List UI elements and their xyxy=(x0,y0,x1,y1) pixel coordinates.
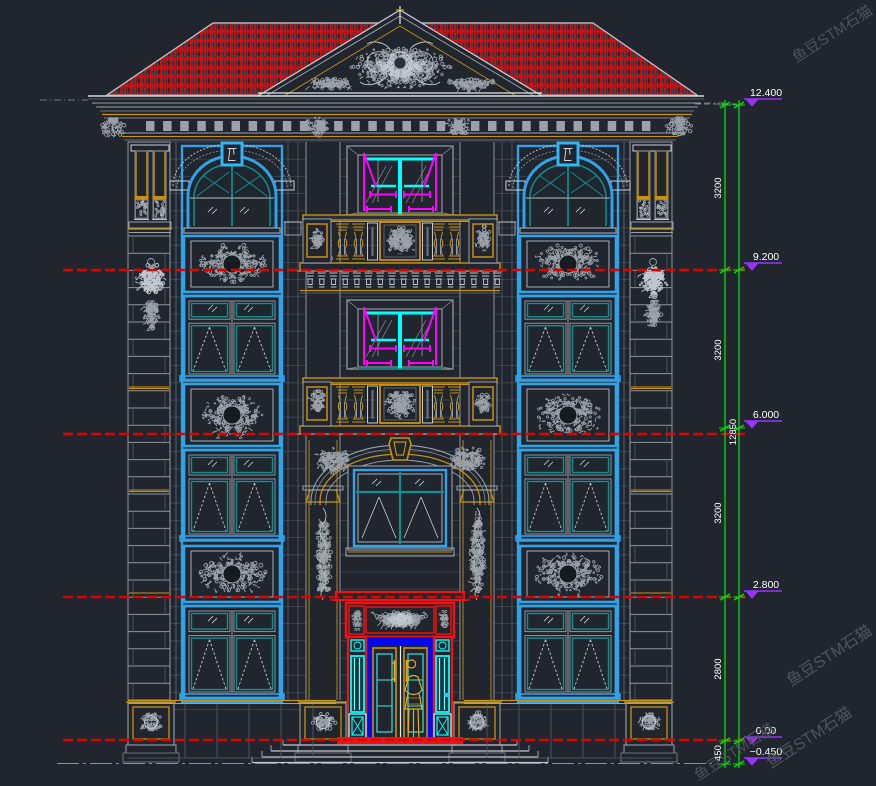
svg-text:12850: 12850 xyxy=(728,419,739,445)
svg-text:12.400: 12.400 xyxy=(750,87,782,99)
svg-text:3200: 3200 xyxy=(713,177,724,198)
svg-text:6.000: 6.000 xyxy=(753,409,779,421)
svg-text:9.200: 9.200 xyxy=(753,251,779,263)
svg-text:2800: 2800 xyxy=(713,658,724,679)
svg-text:3200: 3200 xyxy=(713,502,724,523)
svg-text:2.800: 2.800 xyxy=(753,579,779,591)
svg-text:3200: 3200 xyxy=(713,339,724,360)
